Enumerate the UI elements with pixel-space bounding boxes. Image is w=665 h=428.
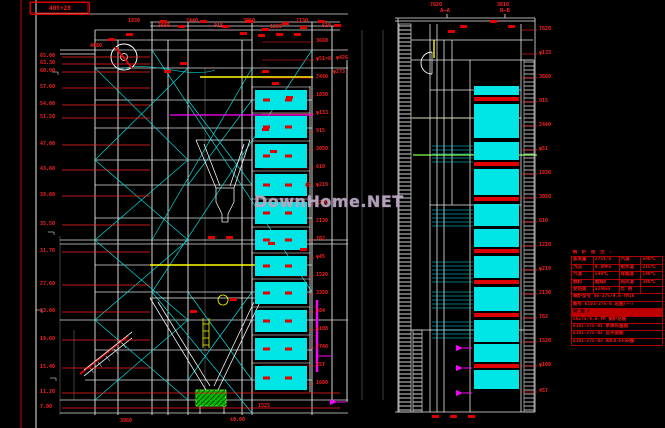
dimension-label: 3050 — [316, 147, 328, 152]
elevation-label: 19.60 — [40, 337, 55, 342]
elevation-label: 39.80 — [40, 193, 55, 198]
dimension-label: 2130 — [296, 19, 308, 24]
spec-cell: 275t/h — [593, 257, 619, 264]
dimension-label: 610 — [322, 24, 331, 29]
tube-bank — [474, 313, 519, 317]
dimension-label: 1830 — [128, 19, 140, 24]
elevation-label: 35.50 — [40, 222, 55, 227]
spec-cell — [641, 287, 663, 294]
dimension-label: 457 — [539, 389, 548, 394]
tube-bank — [255, 144, 307, 168]
tube-bank — [474, 229, 519, 247]
elevation-label: 60.90 — [40, 69, 55, 74]
dimension-label: 1220 — [270, 25, 282, 30]
tube-bank — [474, 364, 519, 368]
spec-cell: 540℃ — [641, 257, 663, 264]
section-label-a: A—A — [440, 8, 450, 14]
dimension-label: 762 — [316, 237, 325, 242]
spec-row: E101-275-02 总平面图 — [572, 331, 663, 338]
dimension-label: 457 — [316, 363, 325, 368]
spec-row: SG275/9.8-YM 锅炉总图 — [572, 316, 663, 323]
elevation-label: 11.20 — [40, 390, 55, 395]
tube-bank — [474, 169, 519, 195]
tube-bank — [474, 204, 519, 226]
spec-table-title: 锅 炉 规 范 : — [572, 250, 663, 257]
tube-bank — [474, 280, 519, 284]
cad-canvas[interactable]: 65.0063.3060.9057.6054.0051.5047.0043.60… — [0, 0, 665, 428]
spec-table: 锅 炉 规 范 : 蒸发量275t/h汽温540℃汽压9.8MPa给水温215℃… — [571, 250, 663, 346]
spec-cell: 540℃ — [593, 272, 619, 279]
dimension-label: 915 — [316, 129, 325, 134]
elevation-label: 57.60 — [40, 85, 55, 90]
tube-bank — [474, 249, 519, 253]
dimension-label: 4880 — [90, 44, 102, 49]
elevation-label: 47.00 — [40, 142, 55, 147]
spec-cell: 燃料 — [572, 279, 594, 286]
spec-cell: 比 例 — [619, 287, 641, 294]
spec-cell: 烟煤Ⅱ — [593, 279, 619, 286]
spec-cell: 215℃ — [641, 264, 663, 271]
dimension-label: 2440 — [539, 123, 551, 128]
section-label-b: B—B — [500, 8, 510, 14]
dimension-label: 3050 — [243, 19, 255, 24]
dimension-label: φ219 — [316, 183, 328, 188]
dimension-label: 1525 — [258, 404, 270, 409]
elevation-label: 65.00 — [40, 54, 55, 59]
tube-bank — [255, 256, 307, 276]
dimension-label: 1520 — [316, 273, 328, 278]
dimension-label: 3050 — [539, 195, 551, 200]
spec-cell: 140℃ — [641, 272, 663, 279]
elevation-label: 7.00 — [40, 405, 52, 410]
tube-bank — [474, 162, 519, 166]
dimension-label: 762 — [539, 315, 548, 320]
dimension-label: 584 — [316, 309, 325, 314]
dimension-label: φ108 — [316, 327, 328, 332]
dimension-label: 915 — [539, 99, 548, 104]
watermark-scribble-icon: e — [305, 181, 311, 190]
tube-bank — [255, 338, 307, 360]
drawing-tab-label[interactable]: 40t+28 — [30, 2, 90, 15]
tube-bank — [474, 370, 519, 389]
dimension-label: 2130 — [316, 219, 328, 224]
dimension-label: φ45 — [316, 255, 325, 260]
dimension-label: φ51×6 — [316, 57, 331, 62]
dimension-label: 915 — [214, 24, 223, 29]
spec-cell: 340℃ — [641, 279, 663, 286]
tube-bank — [474, 287, 519, 311]
spec-row: 锅炉型号 SG-275/9.8-YM16 — [572, 294, 663, 301]
dimension-label: 1830 — [539, 171, 551, 176]
dimension-label: 2130 — [539, 291, 551, 296]
dimension-label: 3350 — [316, 291, 328, 296]
elevation-label: 54.00 — [40, 102, 55, 107]
dimension-label: φ219 — [539, 267, 551, 272]
tube-bank — [255, 310, 307, 332]
spec-cell: 蒸发量 — [572, 257, 594, 264]
tube-bank — [474, 86, 519, 95]
spec-row: 制 造 厂 — [572, 309, 663, 316]
dimension-label: φ273 — [333, 70, 345, 75]
dimension-label: 2740 — [316, 345, 328, 350]
dimension-label: 3660 — [539, 75, 551, 80]
dimension-label: 1520 — [539, 339, 551, 344]
dimension-label: 1220 — [539, 243, 551, 248]
dimension-label: 7620 — [539, 27, 551, 32]
spec-row: 图号 E101-275-0 总图(一) — [572, 301, 663, 308]
dimension-label: 3960 — [120, 419, 132, 424]
elevation-label: 23.80 — [40, 309, 55, 314]
dimension-label: 1680 — [316, 381, 328, 386]
dimension-label: φ108 — [539, 363, 551, 368]
spec-row: E101-275-01 本体布置图 — [572, 324, 663, 331]
dimension-label: φ133 — [539, 51, 551, 56]
watermark: DownHome.NET — [254, 192, 404, 212]
elevation-label: 43.60 — [40, 167, 55, 172]
tube-bank — [474, 320, 519, 342]
spec-cell: 排烟温 — [619, 272, 641, 279]
tube-bank — [474, 197, 519, 201]
spec-cell: 受热面 — [572, 287, 594, 294]
dimension-label: 610 — [316, 165, 325, 170]
cad-generated-linework — [0, 0, 665, 428]
tube-bank — [255, 282, 307, 304]
dimension-label: φ133 — [316, 111, 328, 116]
elevation-label: 51.50 — [40, 115, 55, 120]
tube-bank — [255, 116, 307, 138]
dimension-label: ±0.00 — [230, 418, 245, 423]
dimension-label: φ51 — [539, 147, 548, 152]
spec-row: E101-275-03 ABCD-EFGH图 — [572, 338, 663, 345]
spec-cell: 给水温 — [619, 264, 641, 271]
spec-cell: 汽温 — [572, 272, 594, 279]
elevation-label: 15.40 — [40, 365, 55, 370]
tube-bank — [474, 142, 519, 160]
spec-cell: 汽压 — [572, 264, 594, 271]
tube-bank — [474, 97, 519, 101]
spec-cell: 汽温 — [619, 257, 641, 264]
elevation-label: 27.60 — [40, 282, 55, 287]
dimension-label: 2440 — [316, 75, 328, 80]
spec-cell: 5140㎡ — [593, 287, 619, 294]
dimension-label: 610 — [539, 219, 548, 224]
tube-bank — [255, 230, 307, 250]
dimension-label: 3660 — [316, 39, 328, 44]
tube-bank — [474, 256, 519, 278]
tube-bank — [255, 90, 307, 110]
dimension-label: 2440 — [186, 19, 198, 24]
elevation-label: 63.30 — [40, 61, 55, 66]
dimension-label: 3660 — [158, 24, 170, 29]
spec-cell: 热风温 — [619, 279, 641, 286]
elevation-label: 31.70 — [40, 249, 55, 254]
spec-cell: 9.8MPa — [593, 264, 619, 271]
tube-bank — [255, 366, 307, 390]
tube-bank — [474, 344, 519, 362]
tube-bank — [474, 104, 519, 138]
dimension-label: φ426 — [336, 56, 348, 61]
dimension-label: 1830 — [316, 93, 328, 98]
